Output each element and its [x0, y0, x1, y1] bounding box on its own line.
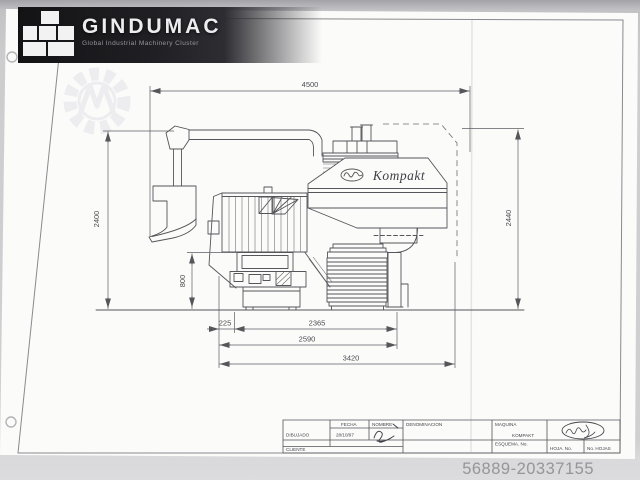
- gindumac-logo-text: GINDUMAC: [82, 16, 222, 37]
- manufacturer-logo-oval: [562, 422, 604, 439]
- value-fecha: 28/10/97: [336, 433, 354, 438]
- discharge-side: [374, 228, 423, 307]
- technical-drawing: Kompakt: [0, 0, 640, 480]
- dimension-chamber-width: 2365: [309, 319, 326, 328]
- dimension-body-width: 2590: [299, 335, 316, 344]
- dimension-top-width: 4500: [302, 80, 319, 89]
- machine-name-label: Kompakt: [372, 168, 426, 183]
- dimension-offset-left: 225: [219, 319, 232, 328]
- listing-id: 56889-20337155: [462, 460, 594, 479]
- bellows-section: [327, 244, 388, 310]
- gindumac-tagline: Global Industrial Machinery Cluster: [82, 40, 222, 47]
- machine-side-view: Kompakt: [96, 124, 524, 310]
- press-chamber: [208, 187, 307, 288]
- manufacturer-logo-scribble: [566, 425, 595, 438]
- gindumac-banner: GINDUMAC Global Industrial Machinery Clu…: [18, 7, 322, 63]
- dimension-door-height: 800: [178, 275, 187, 288]
- paper-crease: [471, 20, 472, 452]
- dimension-left-height: 2400: [92, 211, 101, 228]
- field-fecha: FECHA: [341, 422, 358, 427]
- dimension-right-height: 2440: [504, 210, 513, 227]
- punch-hole: [6, 417, 16, 427]
- listing-photo: Kompakt: [0, 0, 640, 480]
- field-hojas: No. HOJAS: [587, 446, 611, 451]
- field-maquina: MAQUINA: [495, 422, 517, 427]
- field-nombre: NOMBRE: [372, 422, 392, 427]
- title-block: DIBUJADO CLIENTE FECHA 28/10/97 NOMBRE D…: [283, 420, 620, 453]
- field-hoja: HOJA. No.: [550, 446, 572, 451]
- field-cliente: CLIENTE: [286, 447, 305, 452]
- dimension-annotations: 4500 2400 2440 800 225 2365 2590 3420: [92, 80, 524, 368]
- field-denominacion: DENOMINACION: [406, 422, 442, 427]
- gindumac-watermark-icon: [70, 74, 124, 128]
- field-dibujado: DIBUJADO: [286, 433, 310, 438]
- dimension-overall-length: 3420: [343, 354, 360, 363]
- gindumac-logo-icon: [22, 10, 76, 58]
- bale-door-and-base: [230, 253, 332, 311]
- field-esquema: ESQUEMA. No.: [495, 442, 528, 447]
- value-maquina: KOMPAKT: [512, 433, 534, 438]
- machine-hood: Kompakt: [308, 158, 447, 228]
- punch-hole: [7, 52, 17, 62]
